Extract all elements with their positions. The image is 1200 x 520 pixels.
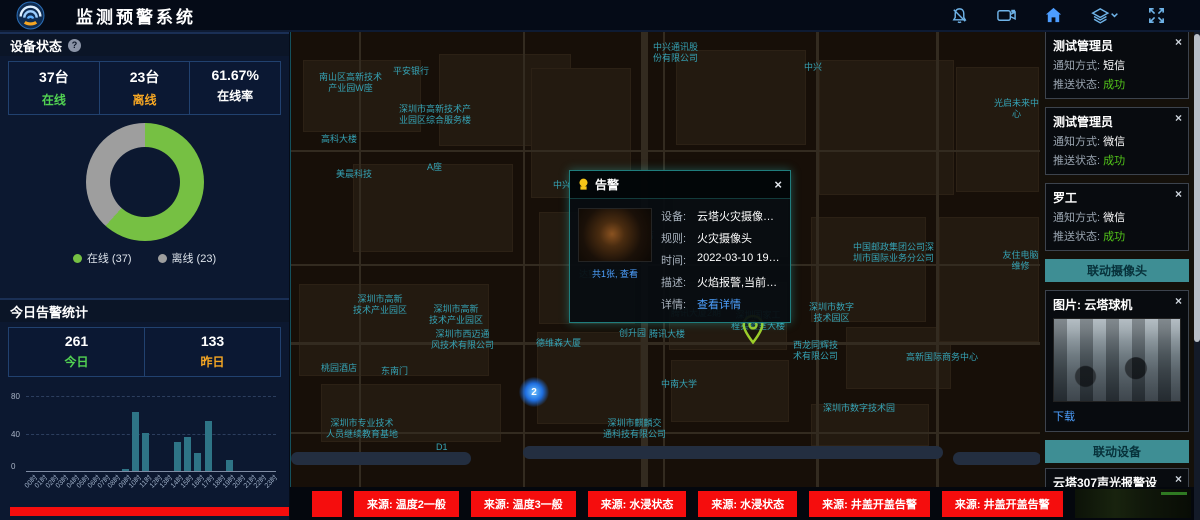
map-block xyxy=(819,60,954,195)
alert-popup: 告警 × 共1张, 查看 设备:云塔火灾摄像头202规则:火灾摄像头时间:202… xyxy=(569,170,791,323)
right-sidebar: 测试管理员×通知方式: 短信推送状态: 成功测试管理员×通知方式: 微信推送状态… xyxy=(1040,32,1194,487)
bar-chart-cell: 10时 xyxy=(130,390,140,471)
stat-offline-label: 离线 xyxy=(100,91,190,108)
y-tick-40: 40 xyxy=(11,430,20,439)
map-place-label: 中兴通讯股 份有限公司 xyxy=(653,42,698,65)
map-place-label: 西龙同辉技 术有限公司 xyxy=(793,340,838,363)
home-icon[interactable] xyxy=(1044,6,1063,25)
map-road xyxy=(523,32,525,487)
alert-popup-body: 共1张, 查看 设备:云塔火灾摄像头202规则:火灾摄像头时间:2022-03-… xyxy=(570,199,790,322)
map-place-label: 深圳市数字技术园 xyxy=(823,403,895,414)
cluster-marker[interactable]: 2 xyxy=(519,377,549,407)
map-place-label: 创升园 xyxy=(619,328,646,339)
map-road xyxy=(291,342,1040,345)
close-icon[interactable]: × xyxy=(1175,295,1182,307)
download-link[interactable]: 下载 xyxy=(1053,411,1075,423)
map-place-label: 深圳市高新 技术产业园区 xyxy=(429,304,483,327)
alarm-lamp-icon xyxy=(578,178,589,191)
map-place-label: 南山区高新技术 产业园W座 xyxy=(319,72,382,95)
hourly-alerts-bar-chart: 80 40 0 00时01时02时03时04时05时06时07时08时09时10… xyxy=(10,385,279,499)
map-place-label: 桃园酒店 xyxy=(321,363,357,374)
help-icon[interactable]: ? xyxy=(68,39,81,52)
alert-field-label: 设备: xyxy=(661,208,697,224)
notification-card: 罗工×通知方式: 微信推送状态: 成功 xyxy=(1045,183,1189,251)
map-place-label: 深圳市专业技术 人员继续教育基地 xyxy=(326,418,398,441)
alert-field-value: 火灾摄像头 xyxy=(697,230,752,246)
device-status-title: 设备状态 xyxy=(10,36,62,55)
donut-legend-item[interactable]: 在线 (37) xyxy=(73,250,132,266)
alert-field-value: 云塔火灾摄像头202 xyxy=(697,208,782,224)
map-road xyxy=(816,32,819,487)
bar-chart-bar xyxy=(194,453,201,471)
device-status-stats: 37台 在线 23台 离线 61.67% 在线率 xyxy=(8,61,281,115)
notification-card: 测试管理员×通知方式: 微信推送状态: 成功 xyxy=(1045,107,1189,175)
device-status-donut-chart xyxy=(86,123,204,241)
alert-source-tile[interactable]: 来源: 井盖开盖告警 xyxy=(809,491,930,517)
fullscreen-icon[interactable] xyxy=(1147,6,1166,25)
notification-row: 推送状态: 成功 xyxy=(1053,76,1181,92)
map-place-label: 光启未来中心 xyxy=(993,98,1040,121)
map-place-label: 深圳市高新 技术产业园区 xyxy=(353,294,407,317)
close-icon[interactable]: × xyxy=(1175,112,1182,124)
map-highway xyxy=(953,452,1040,465)
map-place-label: 美晨科技 xyxy=(336,169,372,180)
camera-icon[interactable] xyxy=(996,6,1017,25)
notification-row-label: 推送状态: xyxy=(1053,231,1103,243)
bar-chart-cell: 16时 xyxy=(193,390,203,471)
city-map[interactable]: 南山区高新技术 产业园W座平安银行深圳市高新技术产 业园区综合服务楼高科大楼美晨… xyxy=(290,32,1040,487)
map-place-label: 中南大学 xyxy=(661,379,697,390)
linked-devices-header: 联动设备 xyxy=(1045,440,1189,463)
device-card: 云塔307声光报警设备×设备编码: ffffff100001ab6c调用服务: … xyxy=(1045,468,1189,487)
alert-field-row: 设备:云塔火灾摄像头202 xyxy=(661,208,782,224)
bar-chart-cell: 21时 xyxy=(245,390,255,471)
bar-chart-cell: 11时 xyxy=(141,390,151,471)
notification-title: 测试管理员 xyxy=(1053,113,1181,130)
bar-chart-cell: 22时 xyxy=(255,390,265,471)
alert-field-row: 详情:查看详情 xyxy=(661,296,782,312)
stat-online-value: 37台 xyxy=(9,67,99,87)
alert-field-row: 时间:2022-03-10 19:13:07 xyxy=(661,252,782,268)
bar-chart-cell: 08时 xyxy=(109,390,119,471)
map-place-label: D1 xyxy=(436,442,448,453)
map-place-label: 高科大楼 xyxy=(321,134,357,145)
map-place-label: 平安银行 xyxy=(393,66,429,77)
stat-yesterday-label: 昨日 xyxy=(145,353,280,370)
device-card-title: 云塔307声光报警设备 xyxy=(1053,474,1181,487)
alert-thumbnail-image[interactable] xyxy=(578,208,652,262)
notification-card: 测试管理员×通知方式: 短信推送状态: 成功 xyxy=(1045,32,1189,99)
bar-chart-bar xyxy=(184,437,191,471)
bar-chart-cell: 05时 xyxy=(78,390,88,471)
alert-tile-partial[interactable] xyxy=(312,491,342,517)
bar-chart-cell: 19时 xyxy=(224,390,234,471)
map-block xyxy=(939,217,1039,342)
linked-camera-header: 联动摄像头 xyxy=(1045,259,1189,282)
alert-source-tile[interactable]: 来源: 温度3一般 xyxy=(471,491,576,517)
close-icon[interactable]: × xyxy=(774,178,782,191)
notification-row-label: 推送状态: xyxy=(1053,155,1103,167)
notification-row-value: 成功 xyxy=(1103,231,1125,243)
legend-dot-icon xyxy=(73,254,82,263)
app-header: 监测预警系统 xyxy=(0,0,1200,32)
camera-card: 图片: 云塔球机 × 下载 xyxy=(1045,290,1189,432)
stat-today: 261 今日 xyxy=(9,328,144,376)
bar-chart-cell: 07时 xyxy=(99,390,109,471)
notification-row-value: 成功 xyxy=(1103,79,1125,91)
alert-source-tile[interactable]: 来源: 水浸状态 xyxy=(588,491,687,517)
bar-chart-bar xyxy=(142,433,149,471)
today-alerts-stats: 261 今日 133 昨日 xyxy=(8,327,281,377)
page-title: 监测预警系统 xyxy=(76,3,196,28)
bar-chart-cell: 03时 xyxy=(57,390,67,471)
stat-online-rate-label: 在线率 xyxy=(190,87,280,104)
bar-chart-bar xyxy=(174,442,181,471)
thumbnail-view-link[interactable]: 共1张, 查看 xyxy=(578,267,652,280)
camera-snapshot-image[interactable] xyxy=(1053,318,1181,402)
bar-chart-cell: 13时 xyxy=(161,390,171,471)
notification-row-value: 成功 xyxy=(1103,155,1125,167)
map-block xyxy=(353,164,513,252)
close-icon[interactable]: × xyxy=(1175,473,1182,485)
bar-chart-cell: 02时 xyxy=(47,390,57,471)
alert-popup-titlebar: 告警 × xyxy=(570,171,790,199)
bar-chart-cell: 09时 xyxy=(120,390,130,471)
stat-today-label: 今日 xyxy=(9,353,144,370)
legend-dot-icon xyxy=(158,254,167,263)
notification-row-value: 短信 xyxy=(1103,60,1125,72)
bell-off-icon[interactable] xyxy=(950,6,969,25)
stat-online: 37台 在线 xyxy=(9,62,99,114)
today-alerts-header: 今日告警统计 xyxy=(0,298,289,322)
notification-row-label: 通知方式: xyxy=(1053,60,1103,72)
notification-row-value: 微信 xyxy=(1103,136,1125,148)
map-place-label: 深圳市西迈通 风技术有限公司 xyxy=(431,329,494,352)
map-place-label: 友住电脑维修 xyxy=(1001,250,1040,273)
stat-offline: 23台 离线 xyxy=(99,62,190,114)
notification-title: 罗工 xyxy=(1053,189,1181,206)
stat-online-label: 在线 xyxy=(9,91,99,108)
notification-row: 通知方式: 微信 xyxy=(1053,209,1181,225)
donut-legend-label: 在线 (37) xyxy=(87,250,132,266)
app-logo-icon xyxy=(16,0,46,30)
bar-chart-cell: 12时 xyxy=(151,390,161,471)
notification-row-value: 微信 xyxy=(1103,212,1125,224)
bottom-alert-ticker: 来源: 温度2一般来源: 温度3一般来源: 水浸状态来源: 水浸状态来源: 井盖… xyxy=(290,487,1200,520)
close-icon[interactable]: × xyxy=(1175,188,1182,200)
alert-field-label: 详情: xyxy=(661,296,697,312)
alert-field-row: 描述:火焰报警,当前触发值为... xyxy=(661,274,782,290)
notification-title: 测试管理员 xyxy=(1053,37,1181,54)
notification-row: 推送状态: 成功 xyxy=(1053,228,1181,244)
map-place-label: 中国邮政集团公司深 圳市国际业务分公司 xyxy=(853,242,934,265)
donut-legend: 在线 (37)离线 (23) xyxy=(0,250,289,266)
bar-chart-cell: 23时 xyxy=(266,390,276,471)
map-road xyxy=(936,32,939,487)
bar-chart-cell: 04时 xyxy=(68,390,78,471)
y-tick-0: 0 xyxy=(11,462,15,471)
donut-legend-item[interactable]: 离线 (23) xyxy=(158,250,217,266)
map-place-label: 东南门 xyxy=(381,366,408,377)
header-toolbar xyxy=(950,6,1166,25)
alert-field-label: 时间: xyxy=(661,252,697,268)
bar-chart-cell: 06时 xyxy=(89,390,99,471)
alert-field-value: 火焰报警,当前触发值为... xyxy=(697,274,782,290)
y-tick-80: 80 xyxy=(11,392,20,401)
stat-online-rate: 61.67% 在线率 xyxy=(189,62,280,114)
page-scrollbar-thumb[interactable] xyxy=(1194,34,1200,342)
notification-row-label: 通知方式: xyxy=(1053,136,1103,148)
alert-popup-title: 告警 xyxy=(595,176,619,193)
notification-row-label: 推送状态: xyxy=(1053,79,1103,91)
device-status-header: 设备状态 ? xyxy=(0,32,289,56)
bar-chart-bar xyxy=(122,469,129,471)
bar-chart-cell: 01时 xyxy=(36,390,46,471)
alert-source-tile[interactable]: 来源: 水浸状态 xyxy=(698,491,797,517)
bar-chart-cell: 18时 xyxy=(214,390,224,471)
camera-card-title: 图片: 云塔球机 xyxy=(1053,296,1181,313)
alert-thumbnail-wrap: 共1张, 查看 xyxy=(578,208,652,312)
alert-field-row: 规则:火灾摄像头 xyxy=(661,230,782,246)
alert-popup-fields: 设备:云塔火灾摄像头202规则:火灾摄像头时间:2022-03-10 19:13… xyxy=(661,208,782,312)
map-place-label: 深圳市高新技术产 业园区综合服务楼 xyxy=(399,104,471,127)
stat-yesterday-value: 133 xyxy=(145,333,280,349)
alert-field-value: 2022-03-10 19:13:07 xyxy=(697,252,782,268)
map-place-label: 高新国际商务中心 xyxy=(906,352,978,363)
bar-chart-bar xyxy=(132,412,139,471)
map-place-label: 德维森大厦 xyxy=(536,338,581,349)
map-place-label: 中兴 xyxy=(804,62,822,73)
today-alerts-title: 今日告警统计 xyxy=(10,302,88,321)
alert-source-tile[interactable]: 来源: 井盖开盖告警 xyxy=(942,491,1063,517)
video-thumbnail-dark[interactable] xyxy=(1075,489,1191,518)
stat-today-value: 261 xyxy=(9,333,144,349)
stat-offline-value: 23台 xyxy=(100,67,190,87)
notification-row: 通知方式: 短信 xyxy=(1053,57,1181,73)
map-place-label: 深圳市数字 技术园区 xyxy=(809,302,854,325)
map-highway xyxy=(523,446,943,459)
stat-online-rate-value: 61.67% xyxy=(190,67,280,83)
bar-chart-cell: 00时 xyxy=(26,390,36,471)
bar-chart-cell: 15时 xyxy=(182,390,192,471)
map-block xyxy=(671,360,789,422)
bar-chart-cell: 20时 xyxy=(234,390,244,471)
alert-field-label: 描述: xyxy=(661,274,697,290)
donut-legend-label: 离线 (23) xyxy=(172,250,217,266)
notification-row-label: 通知方式: xyxy=(1053,212,1103,224)
map-place-label: A座 xyxy=(427,162,442,173)
page-scrollbar-track xyxy=(1194,32,1200,520)
left-sidebar: 设备状态 ? 37台 在线 23台 离线 61.67% 在线率 在线 (37)离… xyxy=(0,32,290,520)
map-highway xyxy=(291,452,471,465)
bar-chart-bar xyxy=(205,421,212,471)
unhandled-progress-bar xyxy=(10,507,290,516)
view-details-link[interactable]: 查看详情 xyxy=(697,296,741,312)
layers-icon[interactable] xyxy=(1090,6,1120,25)
alert-field-label: 规则: xyxy=(661,230,697,246)
bar-chart-cell: 14时 xyxy=(172,390,182,471)
bar-chart-bar xyxy=(226,460,233,471)
map-road xyxy=(291,150,1040,152)
map-block xyxy=(956,67,1039,192)
alert-source-tile[interactable]: 来源: 温度2一般 xyxy=(354,491,459,517)
notification-row: 推送状态: 成功 xyxy=(1053,152,1181,168)
map-place-label: 腾讯大楼 xyxy=(649,329,685,340)
stat-yesterday: 133 昨日 xyxy=(144,328,280,376)
map-place-label: 深圳市麒麟交 通科技有限公司 xyxy=(603,418,666,441)
notification-row: 通知方式: 微信 xyxy=(1053,133,1181,149)
close-icon[interactable]: × xyxy=(1175,36,1182,48)
bar-chart-cell: 17时 xyxy=(203,390,213,471)
